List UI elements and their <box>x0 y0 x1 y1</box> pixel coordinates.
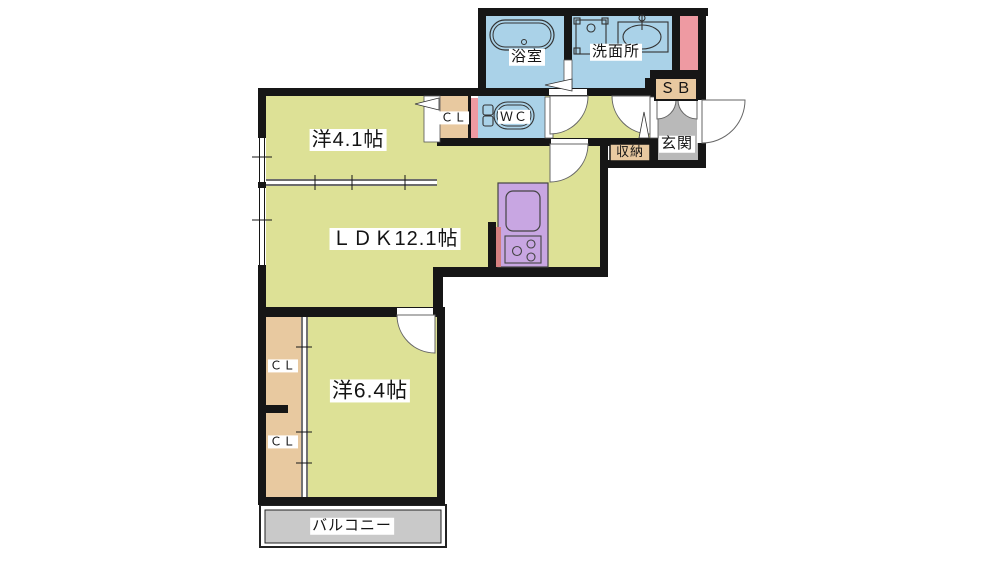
floor-plan-drawing <box>0 0 1000 562</box>
label-western-room-small: 洋4.1帖 <box>310 129 387 151</box>
label-washroom: 洗面所 <box>590 44 642 61</box>
label-bathroom: 浴室 <box>509 49 545 66</box>
kitchen-partition-strip <box>496 227 501 267</box>
kitchen-stub-wall <box>488 222 496 270</box>
floor-plan: 浴室 洗面所 ＳＢ 玄関 収納 ＷＣ ＣＬ 洋4.1帖 ＬＤＫ12.1帖 ＣＬ … <box>0 0 1000 562</box>
label-western-room-large: 洋6.4帖 <box>330 379 410 402</box>
label-storage: 収納 <box>614 145 646 159</box>
label-closet-lower: ＣＬ <box>268 435 298 448</box>
closet-divider-stub <box>266 405 288 413</box>
label-ldk: ＬＤＫ12.1帖 <box>330 228 461 250</box>
label-closet-middle: ＣＬ <box>268 359 298 372</box>
pink-partition-strip <box>470 98 478 138</box>
kitchen-counter <box>496 183 548 267</box>
label-closet-upper: ＣＬ <box>439 111 469 124</box>
label-balcony: バルコニー <box>310 518 394 535</box>
label-toilet: ＷＣ <box>498 110 530 124</box>
label-entrance: 玄関 <box>659 136 695 153</box>
pipe-duct <box>680 16 698 70</box>
front-door-swing <box>702 100 745 143</box>
label-shoe-box: ＳＢ <box>658 81 694 98</box>
